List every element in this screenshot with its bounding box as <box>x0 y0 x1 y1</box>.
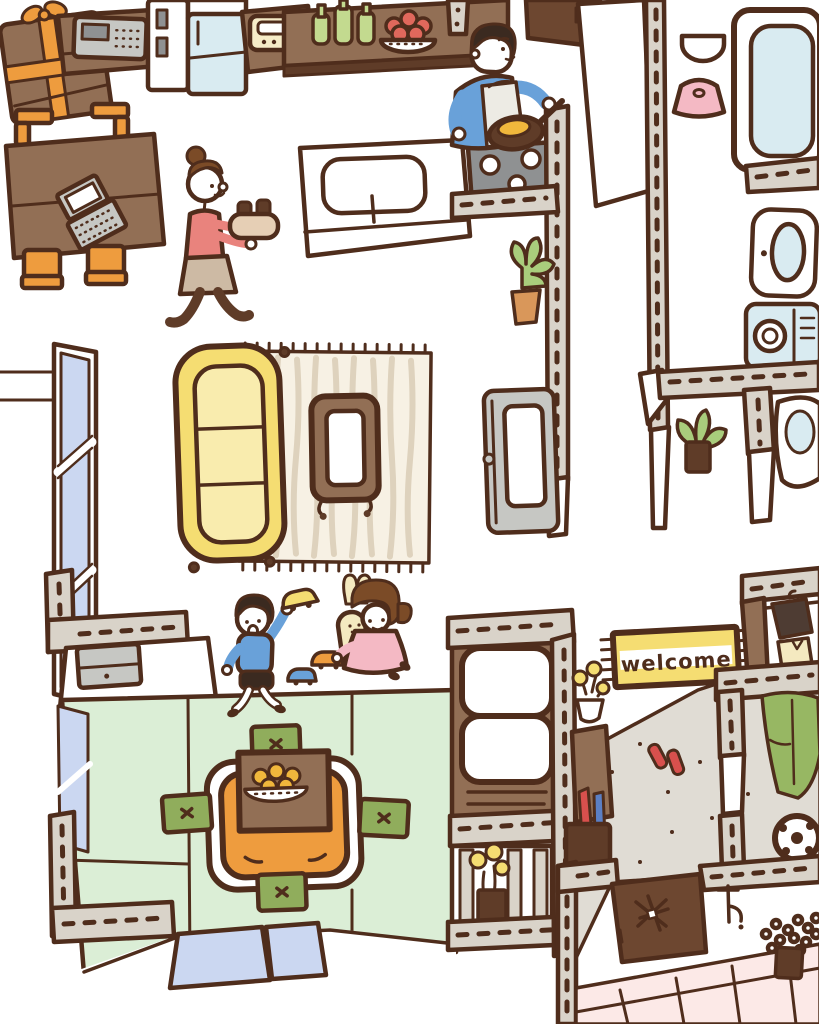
woman-carrying-tray <box>170 147 278 323</box>
washing-machine <box>746 304 819 368</box>
fax-machine <box>73 17 146 59</box>
zabuton-cushion <box>359 799 409 837</box>
hanging-coat <box>772 599 812 638</box>
wash-stand <box>776 397 819 486</box>
home-cutaway-illustration: welcome <box>0 0 819 1024</box>
toilet <box>750 209 817 297</box>
floor-plant <box>677 410 726 472</box>
bath-white-post <box>651 427 669 528</box>
folded-futons <box>462 648 552 816</box>
zabuton-cushion <box>162 793 212 832</box>
sofa <box>174 344 296 572</box>
bathroom <box>578 0 819 528</box>
illustration-canvas: welcome <box>0 0 819 1024</box>
entrance: welcome <box>558 568 819 1024</box>
toy-car-yellow <box>280 587 319 613</box>
wall-branch-vertical <box>744 388 774 522</box>
dining-table-set <box>6 104 164 288</box>
wall-under-tub <box>746 158 819 192</box>
faucet <box>372 196 374 222</box>
wall-stove-horizontal <box>452 186 558 218</box>
fax-console <box>58 10 158 74</box>
bathtub <box>734 10 819 170</box>
refrigerator <box>188 0 246 94</box>
kotatsu <box>206 749 363 891</box>
wash-basin-hook <box>682 36 724 61</box>
white-cabinet <box>148 0 188 90</box>
dining-chair <box>86 246 126 284</box>
open-door-panel <box>482 389 559 533</box>
bathroom-wall-face <box>578 0 652 206</box>
outdoor-tap <box>718 886 744 930</box>
dining-chair <box>22 250 62 288</box>
front-door <box>612 874 706 962</box>
wall-post <box>448 0 468 34</box>
study-area <box>0 0 314 288</box>
living-room <box>174 343 431 572</box>
soccer-ball <box>775 816 819 860</box>
toy-car-blue <box>288 669 316 686</box>
zabuton-cushion <box>257 873 306 911</box>
bottles <box>313 0 374 44</box>
coffee-table <box>311 395 379 520</box>
dining-chair <box>92 104 128 139</box>
sink-counter <box>300 140 470 256</box>
tea-tray <box>230 214 278 238</box>
dining-chair <box>16 110 52 145</box>
girl-with-bunny <box>333 575 413 682</box>
balcony-window <box>452 844 552 928</box>
floor-cushion-periwinkle <box>170 923 326 988</box>
girl-dress <box>344 631 407 673</box>
wall-bath-vertical <box>646 0 668 430</box>
bath-stool <box>674 80 724 117</box>
gray-box <box>77 644 142 688</box>
